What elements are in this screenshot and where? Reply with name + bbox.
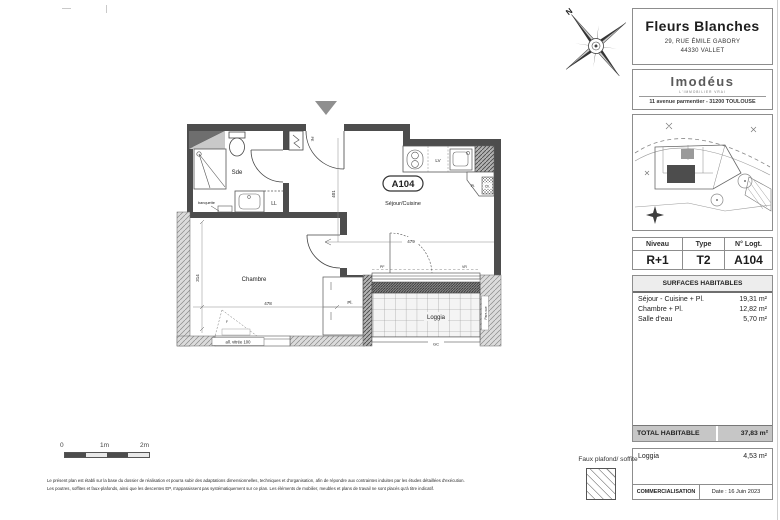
room-label-loggia: Loggia bbox=[427, 315, 446, 321]
electrical-panel bbox=[289, 131, 303, 150]
label-volet-roulant: VR bbox=[462, 265, 467, 269]
scan-mark bbox=[62, 8, 71, 9]
bedroom-closet bbox=[323, 277, 363, 335]
bedroom-window bbox=[212, 310, 290, 346]
total-label: TOTAL HABITABLE bbox=[633, 426, 718, 441]
window-label: all. vitrée 100 bbox=[226, 340, 252, 345]
label-placard-kitchen: Pl. bbox=[471, 183, 476, 188]
room-label-chambre: Chambre bbox=[242, 277, 267, 283]
total-value: 37,83 m² bbox=[718, 426, 772, 441]
label-placard-chambre: Pl. bbox=[347, 300, 352, 305]
label-banquette: banquette bbox=[198, 201, 215, 205]
surface-label: Salle d'eau bbox=[638, 316, 672, 323]
agency-block: Imodéus L'IMMOBILIER VRAI 11 avenue parm… bbox=[632, 69, 773, 110]
scale-tick-0: 0 bbox=[60, 442, 64, 449]
dim-314: 314 bbox=[195, 274, 200, 282]
surface-row: Salle d'eau 5,70 m² bbox=[633, 313, 772, 323]
project-address-2: 44330 VALLET bbox=[633, 47, 772, 56]
surfaces-title: SURFACES HABITABLES bbox=[633, 276, 772, 293]
room-label-sde: Sde bbox=[232, 170, 243, 176]
surface-value: 12,82 m² bbox=[739, 306, 767, 313]
scan-edge-line bbox=[777, 0, 778, 520]
dim-478: 478 bbox=[264, 301, 272, 306]
date-label: Date : 16 Juin 2023 bbox=[700, 485, 772, 499]
dim-479: 479 bbox=[407, 239, 415, 244]
agency-address: 11 avenue parmentier - 31200 TOULOUSE bbox=[639, 96, 766, 105]
window-mark-f: F bbox=[226, 320, 228, 324]
surfaces-table: SURFACES HABITABLES Séjour - Cuisine + P… bbox=[632, 275, 773, 442]
unit-col-type: Type bbox=[683, 238, 725, 251]
agency-tagline: L'IMMOBILIER VRAI bbox=[633, 90, 772, 94]
label-washing-machine: LL bbox=[271, 201, 277, 207]
unit-value-type: T2 bbox=[683, 251, 725, 269]
floor-plan-drawing: PE bbox=[50, 90, 520, 370]
footnote-line-2: Les poutres, soffites et faux-plafonds, … bbox=[47, 485, 447, 493]
scale-bar-labels: 0 1m 2m bbox=[60, 442, 156, 450]
label-chaudiere: Ch. bbox=[485, 185, 490, 189]
site-plan-map bbox=[633, 115, 772, 230]
project-address-1: 29, RUE ÉMILE GABORY bbox=[633, 38, 772, 47]
entrance-door-label: PE bbox=[310, 137, 314, 142]
annex-footer: COMMERCIALISATION Date : 16 Juin 2023 bbox=[633, 484, 772, 499]
unit-table: Niveau Type N° Logt. R+1 T2 A104 bbox=[632, 237, 773, 270]
scale-tick-1m: 1m bbox=[100, 442, 109, 449]
loggia-boundary bbox=[372, 233, 480, 279]
loggia-railing bbox=[372, 337, 480, 342]
agency-logo: Imodéus bbox=[633, 74, 772, 89]
surface-row: Chambre + Pl. 12,82 m² bbox=[633, 303, 772, 313]
surface-row: Séjour - Cuisine + Pl. 19,31 m² bbox=[633, 293, 772, 303]
compass-north-label: N bbox=[564, 6, 574, 17]
bedroom-door bbox=[307, 235, 340, 268]
title-block: Fleurs Blanches 29, RUE ÉMILE GABORY 443… bbox=[632, 8, 773, 65]
unit-col-niveau: Niveau bbox=[633, 238, 683, 251]
unit-badge-label: A104 bbox=[392, 179, 415, 190]
compass-rose-icon: N bbox=[550, 0, 642, 92]
scale-bar bbox=[64, 452, 150, 458]
unit-value-niveau: R+1 bbox=[633, 251, 683, 269]
label-dishwasher: LV bbox=[435, 158, 440, 163]
commercialisation-label: COMMERCIALISATION bbox=[633, 485, 700, 499]
surface-label: Chambre + Pl. bbox=[638, 306, 683, 313]
annex-value: 4,53 m² bbox=[743, 453, 767, 460]
legend-faux-plafond-label: Faux plafond/ soffite bbox=[556, 456, 660, 463]
unit-col-logt: N° Logt. bbox=[725, 238, 772, 251]
surface-value: 5,70 m² bbox=[743, 316, 767, 323]
scale-tick-2m: 2m bbox=[140, 442, 149, 449]
unit-value-logt: A104 bbox=[725, 251, 772, 269]
entrance-marker-icon bbox=[315, 101, 337, 115]
footnotes: Le présent plan est établi sur la base d… bbox=[47, 477, 447, 492]
surface-label: Séjour - Cuisine + Pl. bbox=[638, 296, 704, 303]
soffite-band bbox=[372, 282, 480, 293]
faux-plafond-swatch-icon bbox=[586, 468, 616, 500]
room-label-sejour: Séjour/Cuisine bbox=[385, 201, 421, 207]
dim-401: 401 bbox=[331, 190, 336, 198]
label-garde-corps: GC bbox=[433, 342, 439, 347]
scan-mark bbox=[106, 5, 107, 13]
footnote-line-1: Le présent plan est établi sur la base d… bbox=[47, 477, 447, 485]
surface-value: 19,31 m² bbox=[739, 296, 767, 303]
plan-sheet: PE bbox=[0, 0, 780, 520]
label-pare-vue: Pare-vue bbox=[484, 306, 488, 319]
site-plan-box bbox=[632, 114, 773, 231]
project-title: Fleurs Blanches bbox=[633, 18, 772, 34]
total-row: TOTAL HABITABLE 37,83 m² bbox=[633, 425, 772, 441]
label-porte-fenetre: PF bbox=[380, 265, 384, 269]
